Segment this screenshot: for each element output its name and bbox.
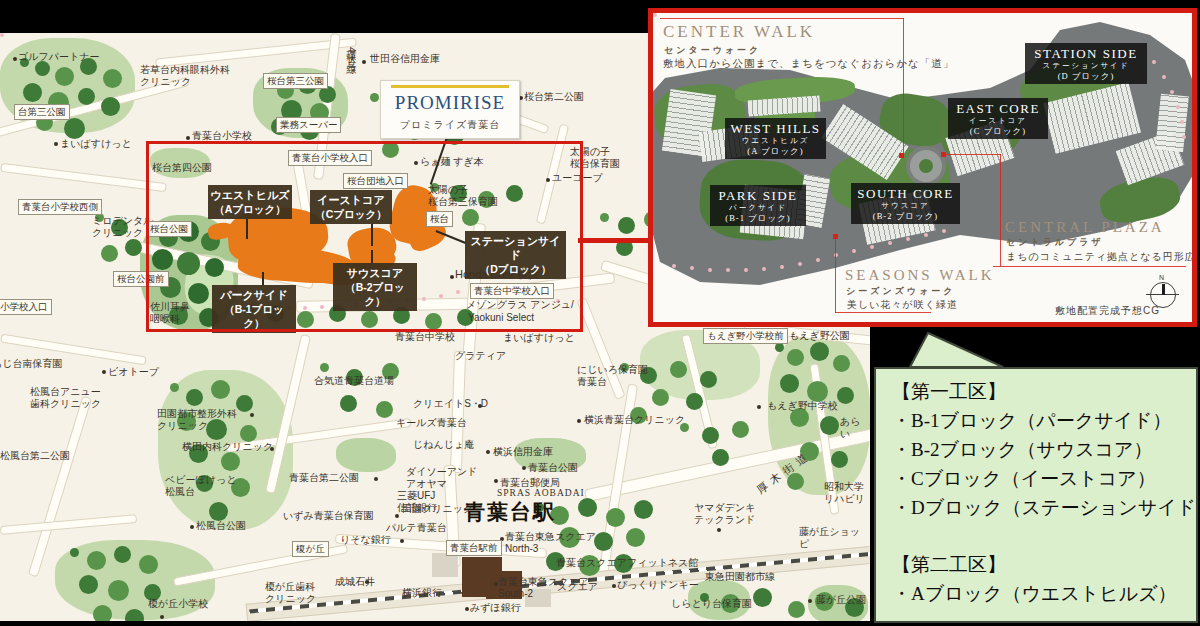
- map-label: パルテ青葉台: [386, 522, 447, 534]
- area-subtitle: センターウォーク: [664, 44, 761, 57]
- map-label: あじ台南保育園: [0, 358, 62, 370]
- map-label: キールズ青葉台: [396, 417, 467, 429]
- poi-dot: [717, 528, 721, 532]
- poi-dot: [757, 405, 761, 409]
- map-label: 田園都市整形外科 クリニック: [157, 408, 237, 432]
- map-label: りそな銀行: [340, 534, 391, 546]
- roundabout-center: [919, 159, 933, 173]
- poi-dot: [395, 514, 399, 518]
- map-label: いずみ青葉台保育園: [283, 510, 374, 522]
- map-label: ヤマダデンキ テックランド: [694, 502, 755, 526]
- map-label: もえぎ野公園: [789, 330, 850, 342]
- construction-phase-box: 【第一工区】 ・B-1ブロック（パークサイド） ・B-2ブロック（サウスコア） …: [874, 367, 1198, 623]
- cg-block-en: SOUTH CORE: [853, 186, 958, 201]
- map-label: 藤が丘ショッピ: [799, 526, 870, 550]
- leader-line-red: [835, 312, 931, 313]
- area-title: SEASONS WALK: [845, 267, 995, 284]
- street-label: もえぎ野小学校前: [703, 328, 788, 344]
- poi-dot: [612, 584, 616, 588]
- cg-block-east-core: EAST COREイーストコア(C ブロック): [948, 98, 1048, 139]
- site-plan-inset: CENTER WALK センターウォーク 敷地入口から公園まで、まちをつなぐおお…: [648, 8, 1197, 327]
- compass-needle: [1162, 284, 1165, 295]
- map-label: 東急田園都市線: [705, 571, 775, 583]
- phase-item: ・Dブロック（ステーションサイド）: [892, 493, 1196, 522]
- map-label: 桜台第二公園: [524, 91, 584, 103]
- building: [432, 553, 458, 577]
- map-label: じねんじょ庵: [413, 439, 474, 451]
- cg-block-code: (B-2 ブロック): [853, 211, 958, 221]
- map-label: 世田谷信用金庫: [370, 53, 440, 65]
- cg-block-en: PARK SIDE: [712, 188, 804, 203]
- road: [450, 351, 466, 473]
- leader-line-red: [1000, 154, 1001, 266]
- poi-dot: [186, 136, 190, 140]
- map-label: ビオトープ: [108, 366, 159, 378]
- cg-block-jp: ステーションサイド: [1027, 61, 1145, 71]
- slide: PROMIRISE プロミライズ青葉台 青葉台駅 ウエストヒルズ（Aブロック） …: [0, 0, 1200, 626]
- map-label: 三菱UFJ 信託銀行: [397, 490, 437, 514]
- map-label: 榎が丘歯科 クリニック: [265, 581, 316, 605]
- map-label: 青葉台第二公園: [289, 472, 359, 484]
- poi-dot: [54, 142, 58, 146]
- road: [0, 163, 167, 192]
- map-label: 横浜銀行: [402, 587, 442, 599]
- compass-north-label: N: [1159, 274, 1164, 281]
- map-label: クリエイトS・D: [413, 398, 488, 410]
- station-name: 青葉台駅: [464, 498, 556, 526]
- cg-block-code: (B-1 ブロック): [712, 213, 804, 223]
- building-row: [1155, 94, 1189, 153]
- cg-block-en: STATION SIDE: [1027, 46, 1145, 61]
- cg-caption: 敷地配置完成予想CG: [1055, 304, 1160, 318]
- street-label: 小学校入口: [0, 299, 52, 315]
- tree-cluster: [775, 343, 784, 352]
- map-label: グラティア: [455, 350, 506, 362]
- poi-dot: [494, 479, 498, 483]
- map-label: しらとり台保育園: [671, 598, 752, 610]
- map-label: ダイソーアンド アオヤマ: [406, 466, 477, 490]
- street-label: 台第三公園: [14, 104, 70, 120]
- map-label: まいばすけっと: [503, 332, 575, 344]
- map-label: 榎が丘小学校: [148, 598, 208, 610]
- map-label: 昭和大学 リハビリ: [824, 481, 865, 505]
- area-desc: 美しい花々が咲く緑道: [847, 298, 958, 312]
- connector-line: [578, 238, 653, 243]
- map-label: みずほ銀行: [470, 602, 521, 614]
- map-label: 青葉台中学校: [395, 331, 455, 343]
- street-tree-dots: [0, 33, 4, 37]
- cg-block-jp: パークサイド: [712, 203, 804, 213]
- phase-item: ・Cブロック（イーストコア）: [892, 464, 1196, 493]
- area-desc: まちのコミュニティ拠点となる円形広場: [1006, 250, 1197, 264]
- park: [336, 438, 396, 472]
- map-label: 松風台公園: [196, 520, 246, 532]
- cg-block-south-core: SOUTH COREサウスコア(B-2 ブロック): [851, 183, 960, 224]
- cg-block-west-hills: WEST HILLSウエストヒルズ(A ブロック): [725, 118, 826, 159]
- poi-dot: [250, 413, 254, 417]
- map-label: ゴルフパートナー: [18, 51, 99, 63]
- leader-line-red: [835, 237, 836, 313]
- logo-subtitle: プロミライズ青葉台: [381, 118, 519, 132]
- map-label: にじいろ保育園 青葉台: [577, 364, 648, 388]
- area-title: CENTRAL PLAZA: [1005, 219, 1165, 236]
- map-label: ベビーぽけっと 松風台: [165, 474, 236, 498]
- route-label-vertical: 環状4号線: [344, 43, 358, 133]
- poi-dot: [13, 57, 17, 61]
- tree-cluster: [320, 363, 329, 372]
- cg-block-station-side: STATION SIDEステーションサイド(D ブロック): [1025, 43, 1147, 84]
- map-label: 横浜青葉台クリニック: [584, 414, 685, 426]
- area-title: CENTER WALK: [663, 22, 815, 42]
- promirise-logo: PROMIRISE プロミライズ青葉台: [380, 80, 520, 139]
- cg-block-jp: サウスコア: [853, 201, 958, 211]
- tree-cluster: [70, 548, 79, 557]
- leader-line-red: [993, 266, 1186, 267]
- logo-title: PROMIRISE: [381, 92, 519, 114]
- street-label: 桜台第三公園: [263, 73, 328, 89]
- cg-block-en: WEST HILLS: [727, 121, 824, 136]
- map-label: 合気道青葉台道場: [314, 375, 394, 387]
- map-label: 藤が丘公園: [816, 594, 866, 606]
- street-label: 青葉台小学校西側: [18, 199, 102, 215]
- cg-block-park-side: PARK SIDEパークサイド(B-1 ブロック): [710, 185, 806, 226]
- road: [0, 514, 137, 535]
- phase-item: ・B-2ブロック（サウスコア）: [892, 435, 1196, 464]
- map-label: 横田内科クリニック: [182, 441, 273, 453]
- street-label: 榎が丘: [292, 541, 329, 557]
- poi-dot: [400, 539, 404, 543]
- phase-item: ・Aブロック（ウエストヒルズ）: [892, 579, 1196, 608]
- map-label: もえぎ野中学校: [767, 400, 838, 412]
- cg-block-en: EAST CORE: [950, 101, 1046, 116]
- map-label: びっくりドンキー: [617, 579, 699, 591]
- map-label: 成城石井: [335, 576, 375, 588]
- street-label: 業務スーパー: [276, 117, 341, 133]
- poi-dot: [808, 599, 812, 603]
- map-label: 青葉台東急スクエア North-3: [505, 531, 596, 555]
- map-label: 若草台内科眼科外科 クリニック: [140, 64, 230, 88]
- tree-cluster: [370, 93, 379, 102]
- logo-gold-bar: [391, 85, 509, 88]
- compass-icon: N: [1150, 282, 1176, 308]
- map-label: 青葉台スクエアフィットネス館: [556, 557, 698, 569]
- map-label: 青葉台公園: [528, 462, 578, 474]
- spacer: [892, 522, 1196, 550]
- phase-title: 【第二工区】: [892, 550, 1196, 579]
- map-label: 松風台アニュー 歯科クリニック: [30, 386, 101, 410]
- leader-line-red: [946, 154, 1001, 155]
- poi-dot: [374, 477, 378, 481]
- cg-block-code: (C ブロック): [950, 126, 1046, 136]
- cg-block-code: (D ブロック): [1027, 71, 1145, 81]
- leader-dot: [899, 153, 904, 158]
- map-label: ミロデンタル クリニック: [92, 215, 153, 239]
- tree-cluster: [600, 213, 609, 222]
- map-label: スクエア: [557, 581, 598, 593]
- phase-title: 【第一工区】: [892, 377, 1196, 406]
- infobox-pointer: [900, 330, 1010, 370]
- cg-block-code: (A ブロック): [727, 146, 824, 156]
- poi-dot: [577, 419, 581, 423]
- poi-dot: [522, 466, 526, 470]
- map-label: 松風台第二公園: [0, 450, 70, 462]
- poi-dot: [160, 615, 164, 619]
- site-highlight-rectangle: [146, 141, 583, 332]
- cg-block-jp: イーストコア: [950, 116, 1046, 126]
- area-subtitle: シーズンズウォーク: [846, 285, 955, 298]
- cg-street-trees: [653, 13, 657, 17]
- area-subtitle: セントラルプラザ: [1006, 236, 1104, 249]
- cg-block-jp: ウエストヒルズ: [727, 136, 824, 146]
- map-label: 横浜信用金庫: [493, 446, 553, 458]
- poi-dot: [102, 370, 106, 374]
- poi-dot: [486, 450, 490, 454]
- leader-line-red: [903, 18, 904, 156]
- phase-item: ・B-1ブロック（パークサイド）: [892, 406, 1196, 435]
- map-label: まいばすけっと: [60, 138, 132, 150]
- tree-cluster: [170, 383, 179, 392]
- poi-dot: [465, 607, 469, 611]
- map-label: あらい: [840, 416, 870, 440]
- poi-dot: [362, 60, 366, 64]
- street-label: 青葉台駅前: [446, 540, 502, 556]
- poi-dot: [190, 525, 194, 529]
- leader-line-red: [660, 18, 904, 19]
- area-desc: 敷地入口から公園まで、まちをつなぐおおらかな「道」: [663, 57, 954, 71]
